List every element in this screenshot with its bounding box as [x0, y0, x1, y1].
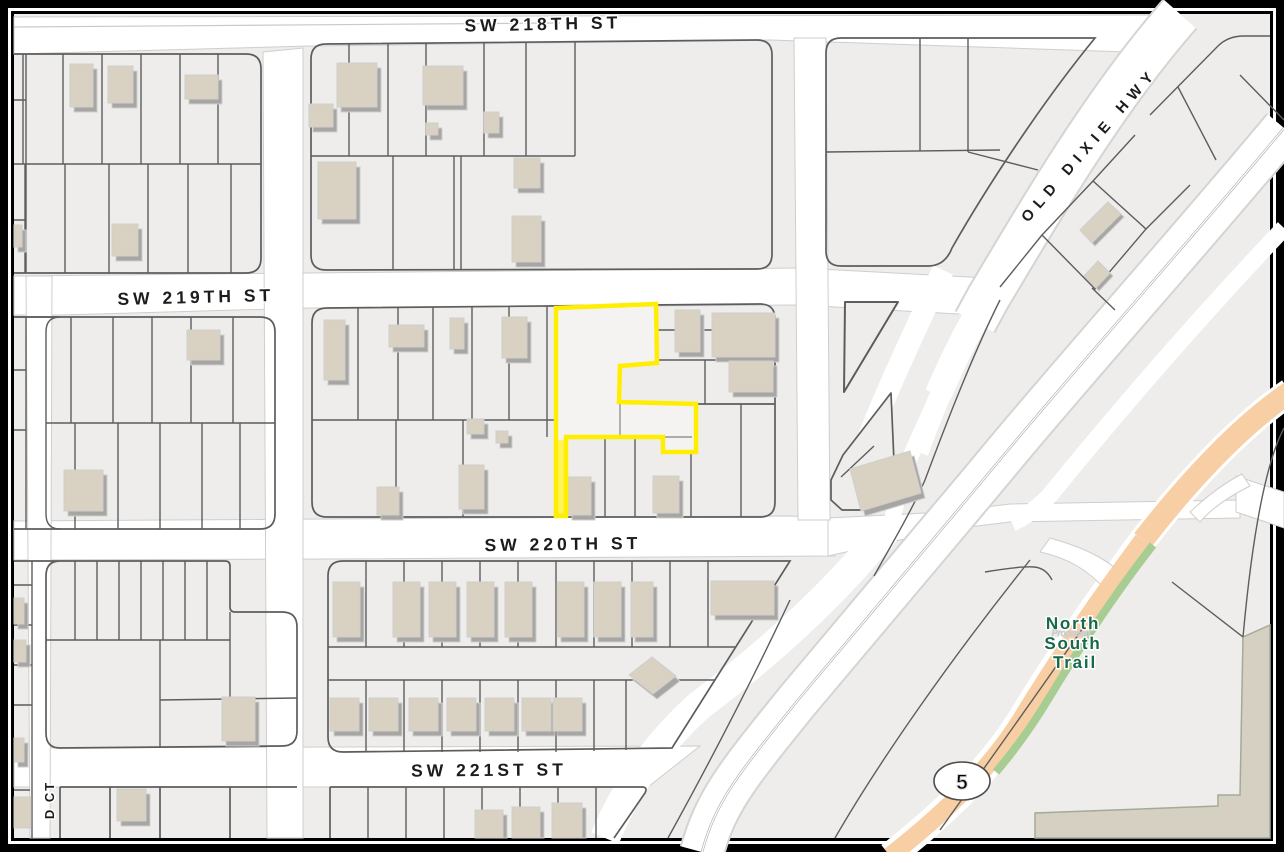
svg-text:SW 219TH ST: SW 219TH ST: [117, 285, 274, 309]
svg-text:5: 5: [956, 771, 968, 794]
svg-text:SW 218TH ST: SW 218TH ST: [464, 12, 621, 35]
svg-text:SW 220TH ST: SW 220TH ST: [484, 533, 641, 555]
svg-text:SW 221ST ST: SW 221ST ST: [411, 759, 567, 780]
svg-text:D CT: D CT: [42, 781, 57, 819]
svg-text:Trail: Trail: [1053, 653, 1097, 672]
svg-text:Proposed: Proposed: [1052, 628, 1092, 638]
